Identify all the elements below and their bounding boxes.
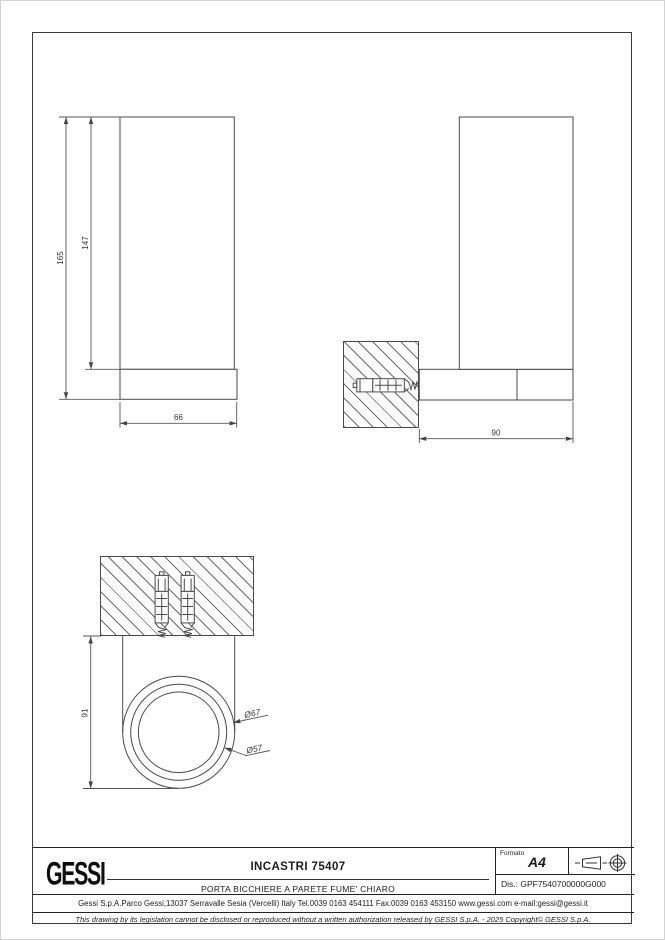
dim-label-165: 165 (56, 251, 65, 265)
wall-anchor-left (155, 572, 168, 638)
dimension-91: 91 (81, 636, 178, 789)
wall-anchor-right (181, 572, 194, 638)
product-title: INCASTRI 75407 (107, 848, 489, 880)
dimension-165: 165 (56, 117, 68, 399)
dimension-66: 66 (120, 402, 237, 428)
bottom-view: 91 Ø67 Ø57 (81, 572, 270, 789)
front-body-outline (120, 117, 234, 369)
format-column: Formato A4 Dis.: GPF754070000 (495, 848, 634, 894)
gessi-logo: GESSI (46, 856, 105, 894)
legal-notice: This drawing by its legislation cannot b… (33, 912, 634, 927)
diameter-label-57: Ø57 (224, 742, 270, 756)
drawing-number: Dis.: GPF7540700000G000 (496, 875, 635, 894)
dim-label-91: 91 (81, 708, 90, 717)
formato-cell: Formato A4 (496, 848, 569, 875)
side-arm-outline (419, 369, 573, 400)
side-view: 90 (353, 117, 573, 443)
glass-outer-circle (131, 684, 227, 780)
product-subtitle: PORTA BICCHIERE A PARETE FUME' CHIARO (107, 884, 489, 894)
dim-label-90: 90 (492, 429, 501, 438)
formato-value: A4 (528, 854, 546, 870)
title-block: GESSI INCASTRI 75407 PORTA BICCHIERE A P… (33, 847, 634, 926)
front-base-outline (120, 369, 237, 399)
projection-symbol-cell (569, 848, 635, 875)
dim-label-147: 147 (81, 236, 90, 250)
front-view: 165 147 66 (56, 117, 237, 428)
svg-text:Ø67: Ø67 (242, 707, 261, 720)
dimension-147: 147 (81, 117, 93, 369)
dimension-90: 90 (419, 402, 573, 444)
wall-anchor-side (353, 379, 419, 392)
drawing-sheet: 165 147 66 (0, 0, 665, 940)
title-block-main-row: GESSI INCASTRI 75407 PORTA BICCHIERE A P… (33, 848, 634, 894)
diameter-label-67: Ø67 (233, 707, 268, 723)
svg-text:Ø57: Ø57 (244, 742, 263, 755)
side-tumbler-outline (459, 117, 573, 369)
formato-label: Formato (500, 850, 524, 857)
first-angle-projection-icon (569, 848, 635, 875)
company-address: Gessi S.p.A.Parco Gessi,13037 Serravalle… (33, 894, 634, 912)
drawing-linework: 165 147 66 (1, 1, 665, 940)
dim-label-66: 66 (174, 413, 183, 422)
title-cell: INCASTRI 75407 PORTA BICCHIERE A PARETE … (107, 848, 489, 893)
body-outer-circle (123, 676, 235, 788)
glass-inner-circle (138, 692, 219, 773)
